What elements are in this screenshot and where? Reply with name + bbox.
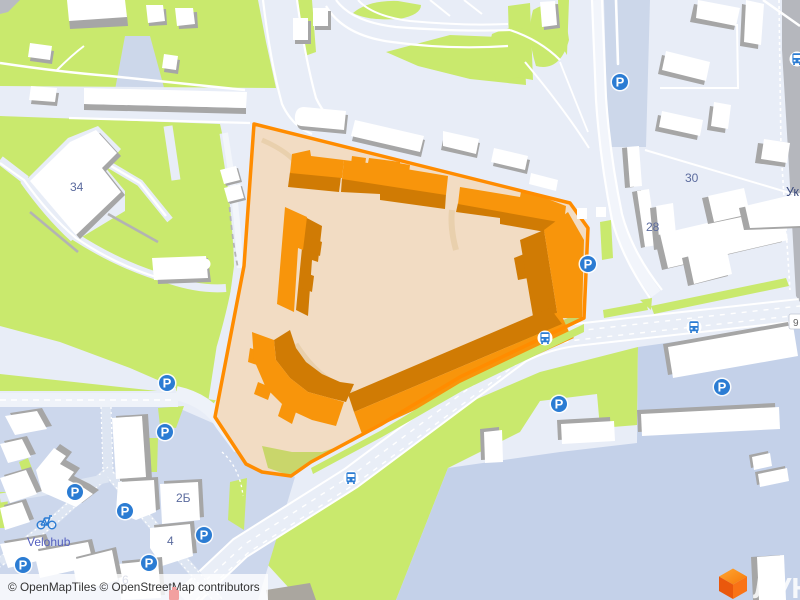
svg-text:4: 4 bbox=[167, 534, 174, 548]
svg-text:34: 34 bbox=[70, 180, 84, 194]
svg-text:© OpenMapTiles © OpenStreetMap: © OpenMapTiles © OpenStreetMap contribut… bbox=[8, 580, 260, 594]
svg-text:28: 28 bbox=[646, 220, 660, 234]
svg-text:Ук: Ук bbox=[786, 185, 799, 199]
svg-text:2Б: 2Б bbox=[176, 491, 191, 505]
svg-text:9: 9 bbox=[793, 318, 799, 329]
svg-text:ЛУН: ЛУН bbox=[753, 573, 800, 600]
svg-text:30: 30 bbox=[685, 171, 699, 185]
svg-text:Velohub: Velohub bbox=[27, 535, 71, 549]
